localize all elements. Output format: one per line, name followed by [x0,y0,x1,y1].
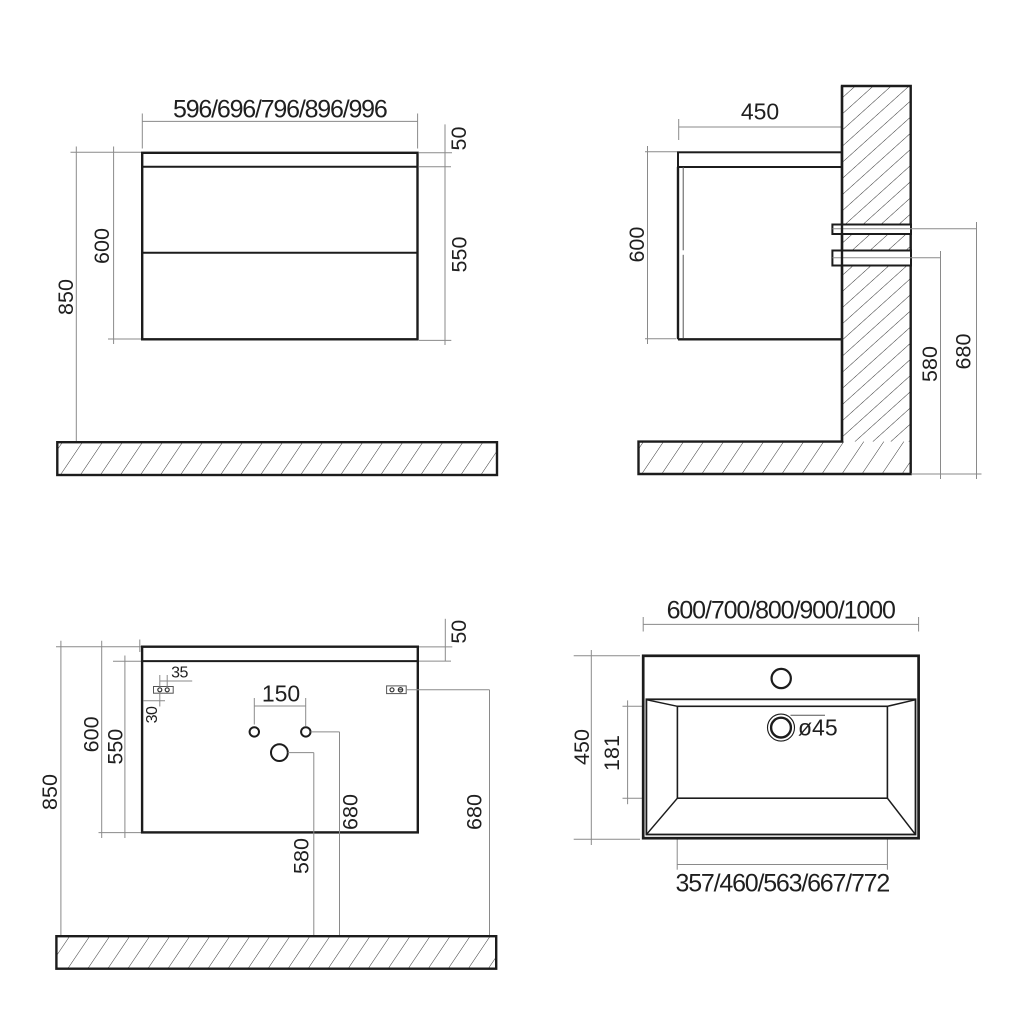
svg-text:580: 580 [289,838,313,874]
svg-text:30: 30 [144,706,161,723]
svg-text:600: 600 [79,716,103,752]
svg-text:450: 450 [741,99,779,125]
svg-text:450: 450 [570,729,594,765]
svg-text:ø45: ø45 [798,715,838,741]
svg-text:550: 550 [104,729,128,765]
svg-text:50: 50 [447,127,471,151]
svg-text:600: 600 [625,227,649,263]
svg-text:600/700/800/900/1000: 600/700/800/900/1000 [667,597,895,625]
svg-text:850: 850 [54,279,78,315]
svg-text:357/460/563/667/772: 357/460/563/667/772 [676,870,890,898]
svg-text:550: 550 [447,237,471,273]
svg-text:181: 181 [600,735,624,771]
svg-text:850: 850 [38,774,62,810]
svg-text:35: 35 [171,665,188,682]
svg-text:600: 600 [90,228,114,264]
svg-text:680: 680 [338,794,362,830]
svg-text:680: 680 [462,794,486,830]
svg-text:580: 580 [918,346,942,382]
svg-text:596/696/796/896/996: 596/696/796/896/996 [173,96,387,124]
svg-text:150: 150 [262,681,300,707]
svg-text:50: 50 [447,620,471,644]
svg-text:680: 680 [951,334,975,370]
